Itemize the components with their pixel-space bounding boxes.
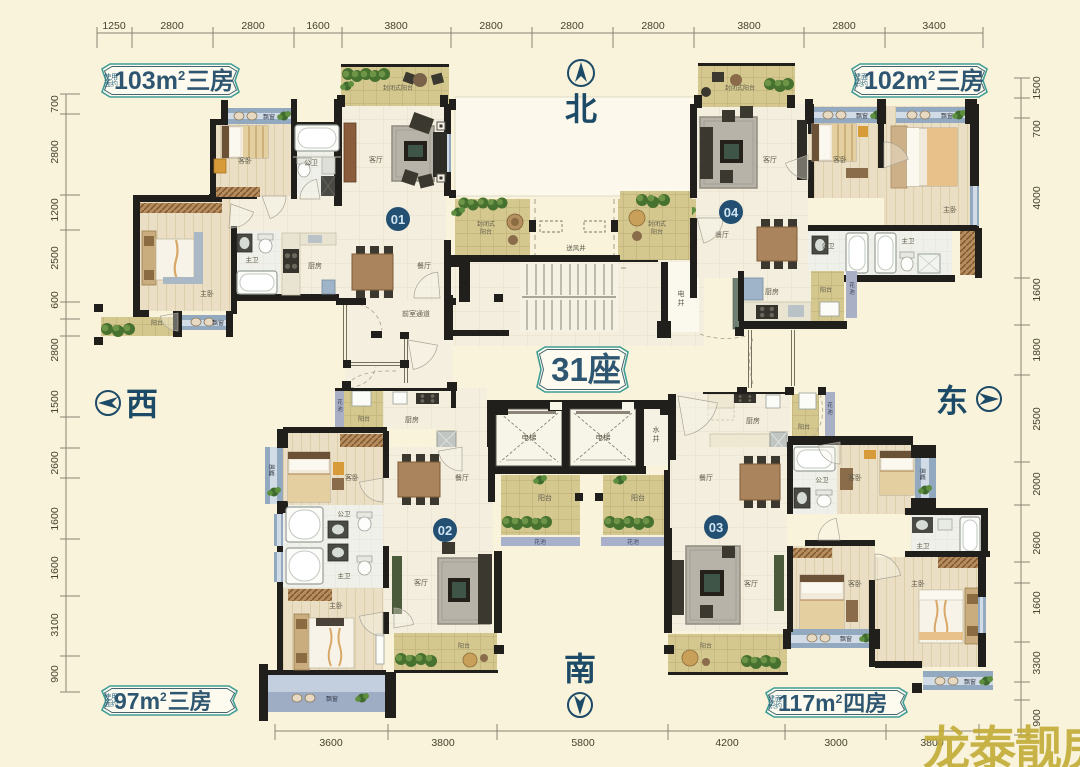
svg-text:1600: 1600 [1031, 591, 1043, 615]
svg-text:主卫: 主卫 [902, 236, 916, 245]
svg-text:700: 700 [1031, 120, 1043, 138]
svg-text:花池: 花池 [627, 538, 639, 546]
svg-text:阳台: 阳台 [820, 286, 832, 294]
svg-text:1800: 1800 [1031, 338, 1043, 362]
svg-text:900: 900 [49, 665, 61, 683]
svg-text:封闭式阳台: 封闭式阳台 [383, 84, 413, 92]
svg-text:飘窗: 飘窗 [326, 695, 338, 703]
svg-text:前室通道: 前室通道 [402, 309, 430, 318]
svg-text:阳台: 阳台 [538, 493, 552, 502]
svg-text:01: 01 [391, 212, 405, 227]
svg-text:客卧: 客卧 [848, 473, 862, 482]
svg-text:公卫: 公卫 [304, 159, 318, 167]
svg-text:阳台: 阳台 [700, 642, 712, 650]
svg-text:3800: 3800 [431, 737, 455, 749]
svg-text:公卫: 公卫 [816, 476, 830, 484]
svg-text:2800: 2800 [641, 20, 665, 32]
svg-text:阳台: 阳台 [631, 493, 645, 502]
svg-text:花池: 花池 [337, 398, 343, 413]
svg-text:客厅: 客厅 [414, 578, 428, 587]
svg-text:3600: 3600 [319, 737, 343, 749]
svg-text:飘窗: 飘窗 [919, 468, 927, 480]
svg-text:客卧: 客卧 [833, 155, 847, 164]
svg-text:南: 南 [564, 651, 596, 687]
svg-text:03: 03 [709, 520, 723, 535]
svg-text:飘窗: 飘窗 [212, 319, 224, 327]
svg-text:主卫: 主卫 [917, 541, 931, 550]
svg-text:2600: 2600 [49, 451, 61, 475]
svg-text:主卧: 主卧 [943, 205, 957, 214]
svg-text:2800: 2800 [160, 20, 184, 32]
svg-text:主卧: 主卧 [329, 601, 343, 610]
svg-text:花池: 花池 [849, 281, 855, 296]
svg-text:2000: 2000 [1031, 472, 1043, 496]
svg-text:客卧: 客卧 [848, 579, 862, 588]
svg-text:封闭式: 封闭式 [648, 220, 666, 228]
svg-text:阳台: 阳台 [480, 228, 492, 236]
svg-text:飘窗: 飘窗 [263, 113, 275, 121]
svg-text:4200: 4200 [715, 737, 739, 749]
svg-text:西: 西 [126, 386, 158, 422]
svg-text:飘窗: 飘窗 [941, 112, 953, 120]
svg-text:04: 04 [724, 205, 739, 220]
svg-text:送风井: 送风井 [566, 243, 586, 252]
svg-text:1200: 1200 [49, 198, 61, 222]
svg-text:02: 02 [438, 523, 452, 538]
svg-text:餐厅: 餐厅 [699, 473, 713, 482]
svg-text:飘窗: 飘窗 [964, 678, 976, 686]
svg-text:主卧: 主卧 [200, 289, 214, 298]
svg-text:3400: 3400 [922, 20, 946, 32]
svg-text:阳台: 阳台 [798, 423, 810, 431]
svg-text:花池: 花池 [534, 538, 546, 546]
svg-text:电梯: 电梯 [522, 432, 537, 442]
svg-text:1250: 1250 [102, 20, 126, 32]
svg-text:102m2三房: 102m2三房 [864, 67, 984, 95]
svg-text:阳台: 阳台 [458, 642, 470, 650]
svg-text:1600: 1600 [49, 556, 61, 580]
svg-text:600: 600 [49, 291, 61, 309]
svg-text:客厅: 客厅 [369, 155, 383, 164]
svg-text:3300: 3300 [1031, 651, 1043, 675]
svg-text:2500: 2500 [49, 246, 61, 270]
svg-text:5800: 5800 [571, 737, 595, 749]
svg-text:2800: 2800 [560, 20, 584, 32]
svg-text:厨房: 厨房 [765, 287, 779, 296]
svg-text:1500: 1500 [1031, 76, 1043, 100]
svg-text:主卧: 主卧 [911, 579, 925, 588]
svg-text:4000: 4000 [1031, 186, 1043, 210]
svg-text:2600: 2600 [1031, 531, 1043, 555]
svg-text:东: 东 [936, 383, 968, 419]
svg-text:3800: 3800 [737, 20, 761, 32]
svg-text:阳台: 阳台 [358, 415, 370, 423]
svg-text:2800: 2800 [49, 140, 61, 164]
svg-text:1600: 1600 [306, 20, 330, 32]
svg-text:2800: 2800 [241, 20, 265, 32]
svg-text:龙泰靓房: 龙泰靓房 [923, 722, 1080, 767]
svg-text:主卫: 主卫 [246, 255, 260, 264]
svg-text:117m2四房: 117m2四房 [778, 690, 887, 716]
svg-text:3000: 3000 [824, 737, 848, 749]
svg-text:31座: 31座 [551, 351, 621, 388]
svg-text:2800: 2800 [479, 20, 503, 32]
svg-text:北: 北 [565, 91, 597, 127]
svg-text:1600: 1600 [1031, 278, 1043, 302]
svg-text:客厅: 客厅 [744, 579, 758, 588]
svg-text:103m2三房: 103m2三房 [114, 67, 234, 95]
svg-text:2500: 2500 [1031, 407, 1043, 431]
svg-text:飘窗: 飘窗 [856, 112, 868, 120]
svg-text:主卫: 主卫 [338, 571, 352, 580]
svg-text:2800: 2800 [49, 338, 61, 362]
svg-text:700: 700 [49, 95, 61, 113]
svg-text:公卫: 公卫 [822, 242, 836, 250]
svg-text:公卫: 公卫 [338, 510, 352, 518]
svg-text:厨房: 厨房 [746, 416, 760, 425]
svg-text:1500: 1500 [49, 390, 61, 414]
svg-text:2800: 2800 [832, 20, 856, 32]
svg-text:餐厅: 餐厅 [455, 473, 469, 482]
svg-text:飘窗: 飘窗 [268, 464, 276, 476]
svg-text:客卧: 客卧 [345, 473, 359, 482]
svg-text:3100: 3100 [49, 613, 61, 637]
svg-text:飘窗: 飘窗 [840, 635, 852, 643]
svg-text:电梯: 电梯 [596, 432, 611, 442]
svg-text:封闭式阳台: 封闭式阳台 [725, 84, 755, 92]
svg-text:封闭式: 封闭式 [477, 220, 495, 228]
svg-text:1600: 1600 [49, 507, 61, 531]
svg-text:花池: 花池 [827, 401, 833, 416]
svg-text:阳台: 阳台 [651, 228, 663, 236]
svg-text:3800: 3800 [384, 20, 408, 32]
svg-text:客卧: 客卧 [238, 156, 252, 165]
svg-text:厨房: 厨房 [308, 261, 322, 270]
svg-text:餐厅: 餐厅 [417, 261, 431, 270]
svg-text:客厅: 客厅 [763, 155, 777, 164]
svg-text:厨房: 厨房 [405, 415, 419, 424]
